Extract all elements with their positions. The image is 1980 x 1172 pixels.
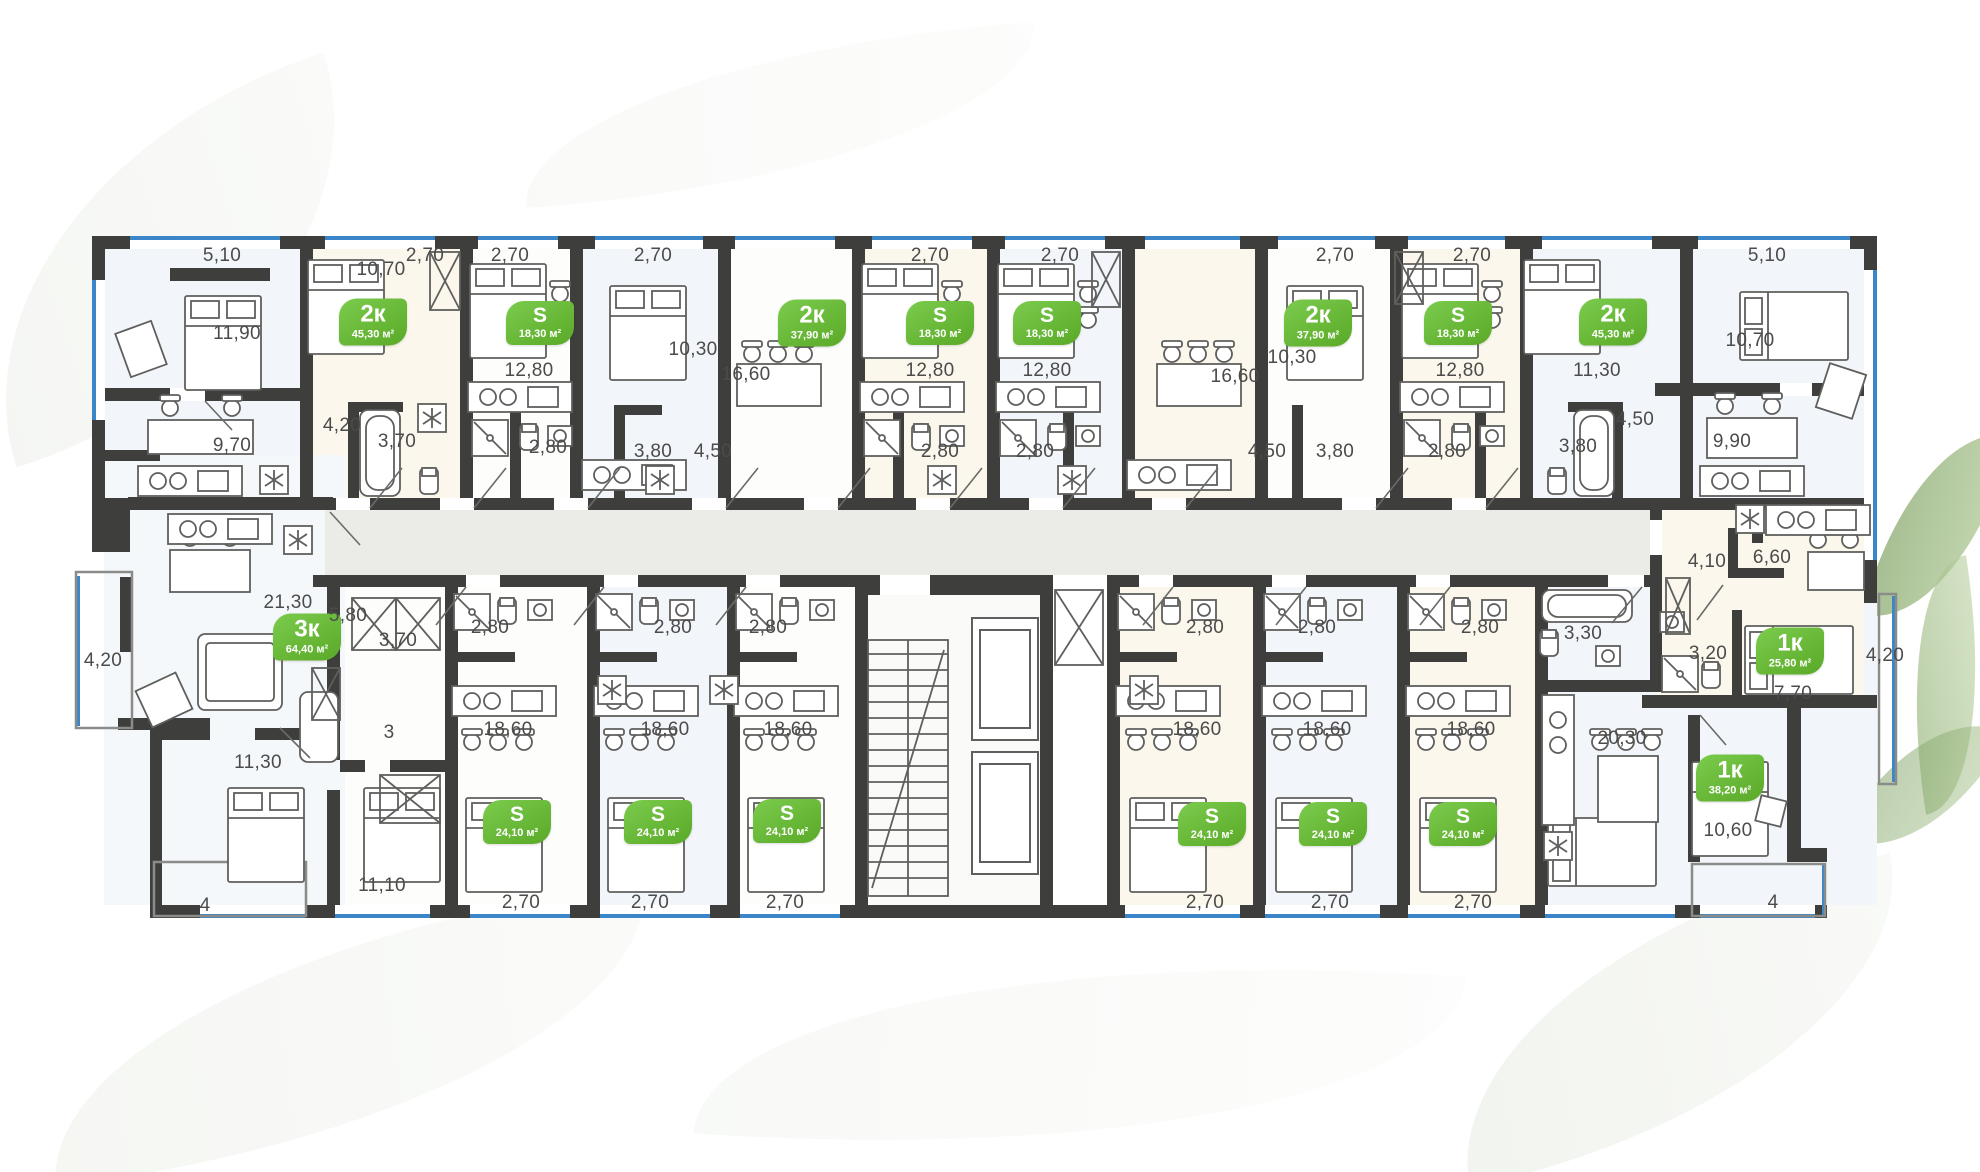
dimension-label: 2,80 — [1461, 617, 1499, 639]
dimension-label: 16,60 — [1210, 366, 1259, 388]
dimension-label: 4,10 — [1688, 551, 1726, 573]
dimension-label: 4,50 — [694, 441, 732, 463]
dimension-label: 10,60 — [1703, 820, 1752, 842]
dimension-label: 4,20 — [84, 650, 122, 672]
dimension-label: 12,80 — [1435, 360, 1484, 382]
dimension-label: 2,80 — [1186, 617, 1224, 639]
dimension-label: 10,30 — [1267, 347, 1316, 369]
dimension-label: 5,10 — [203, 245, 241, 267]
unit-badge-s[interactable]: S24,10 м² — [624, 800, 692, 844]
dimension-label: 2,70 — [634, 245, 672, 267]
dimension-label: 7,70 — [1774, 683, 1812, 705]
dimension-label: 11,90 — [213, 323, 261, 345]
dimension-label: 18,60 — [1446, 719, 1495, 741]
unit-badge-s[interactable]: S24,10 м² — [1429, 802, 1497, 846]
unit-badge-s[interactable]: S24,10 м² — [753, 799, 821, 843]
dimension-label: 2,80 — [1428, 441, 1466, 463]
dimension-label: 12,80 — [1022, 360, 1071, 382]
dimension-label: 2,80 — [1298, 617, 1336, 639]
dimension-label: 12,80 — [905, 360, 954, 382]
dimension-label: 2,80 — [529, 437, 567, 459]
dimension-label: 2,80 — [749, 617, 787, 639]
dimension-label: 2,70 — [1041, 245, 1079, 267]
dimension-label: 10,70 — [1725, 330, 1774, 352]
unit-badge-2к[interactable]: 2к45,30 м² — [1579, 299, 1647, 346]
dimension-label: 3,20 — [1689, 643, 1727, 665]
dimension-label: 2,80 — [471, 617, 509, 639]
dimension-label: 18,60 — [763, 719, 812, 741]
dimension-label: 2,70 — [1316, 245, 1354, 267]
unit-badge-s[interactable]: S24,10 м² — [1178, 802, 1246, 846]
unit-badge-s[interactable]: S24,10 м² — [1299, 802, 1367, 846]
dimension-label: 3,70 — [378, 431, 416, 453]
dimension-label: 4 — [200, 895, 211, 917]
dimension-label: 5,80 — [329, 605, 367, 627]
dimension-label: 9,70 — [213, 435, 251, 457]
dimension-label: 11,30 — [1573, 360, 1621, 382]
dimension-label: 2,70 — [491, 245, 529, 267]
dimension-label: 4,50 — [1248, 441, 1286, 463]
unit-badge-2к[interactable]: 2к37,90 м² — [1284, 300, 1352, 347]
dimension-label: 18,60 — [640, 719, 689, 741]
unit-badge-1к[interactable]: 1к38,20 м² — [1696, 755, 1764, 802]
dimension-label: 5,10 — [1748, 245, 1786, 267]
dimension-label: 2,70 — [1311, 892, 1349, 914]
unit-badge-s[interactable]: S18,30 м² — [1013, 301, 1081, 345]
dimension-label: 3,80 — [634, 441, 672, 463]
unit-badge-s[interactable]: S18,30 м² — [506, 301, 574, 345]
dimension-label: 3,70 — [379, 630, 417, 652]
dimension-label: 2,70 — [766, 892, 804, 914]
dimension-label: 2,80 — [921, 441, 959, 463]
dimension-label: 9,90 — [1713, 431, 1751, 453]
dimension-label: 2,70 — [1454, 892, 1492, 914]
dimension-label: 16,60 — [721, 364, 770, 386]
unit-badge-2к[interactable]: 2к37,90 м² — [778, 300, 846, 347]
unit-badge-2к[interactable]: 2к45,30 м² — [339, 299, 407, 346]
dimension-label: 3,30 — [1564, 623, 1602, 645]
dimension-label: 21,30 — [263, 592, 312, 614]
dimension-label: 2,70 — [502, 892, 540, 914]
dimension-label: 6,60 — [1753, 547, 1791, 569]
dimension-label: 10,70 — [356, 259, 405, 281]
labels-layer: 2к45,30 м²S18,30 м²2к37,90 м²S18,30 м²S1… — [0, 0, 1980, 1172]
unit-badge-s[interactable]: S18,30 м² — [1424, 301, 1492, 345]
dimension-label: 18,60 — [1172, 719, 1221, 741]
unit-badge-1к[interactable]: 1к25,80 м² — [1756, 628, 1824, 675]
unit-badge-s[interactable]: S18,30 м² — [906, 301, 974, 345]
dimension-label: 2,70 — [1453, 245, 1491, 267]
dimension-label: 18,60 — [483, 719, 532, 741]
dimension-label: 4,50 — [1616, 409, 1654, 431]
dimension-label: 4,20 — [1866, 645, 1904, 667]
dimension-label: 10,30 — [668, 339, 717, 361]
dimension-label: 4 — [1768, 892, 1779, 914]
dimension-label: 11,10 — [358, 875, 406, 897]
dimension-label: 18,60 — [1302, 719, 1351, 741]
dimension-label: 12,80 — [504, 360, 553, 382]
dimension-label: 2,70 — [1186, 892, 1224, 914]
unit-badge-s[interactable]: S24,10 м² — [483, 800, 551, 844]
dimension-label: 2,80 — [654, 617, 692, 639]
dimension-label: 2,80 — [1016, 441, 1054, 463]
dimension-label: 2,70 — [631, 892, 669, 914]
dimension-label: 4,20 — [323, 415, 361, 437]
dimension-label: 3,80 — [1559, 436, 1597, 458]
dimension-label: 3,80 — [1316, 441, 1354, 463]
dimension-label: 2,70 — [911, 245, 949, 267]
apartment-floor-plan: 2к45,30 м²S18,30 м²2к37,90 м²S18,30 м²S1… — [0, 0, 1980, 1172]
dimension-label: 11,30 — [234, 752, 282, 774]
dimension-label: 3 — [384, 722, 395, 744]
dimension-label: 20,30 — [1597, 728, 1646, 750]
dimension-label: 2,70 — [406, 245, 444, 267]
